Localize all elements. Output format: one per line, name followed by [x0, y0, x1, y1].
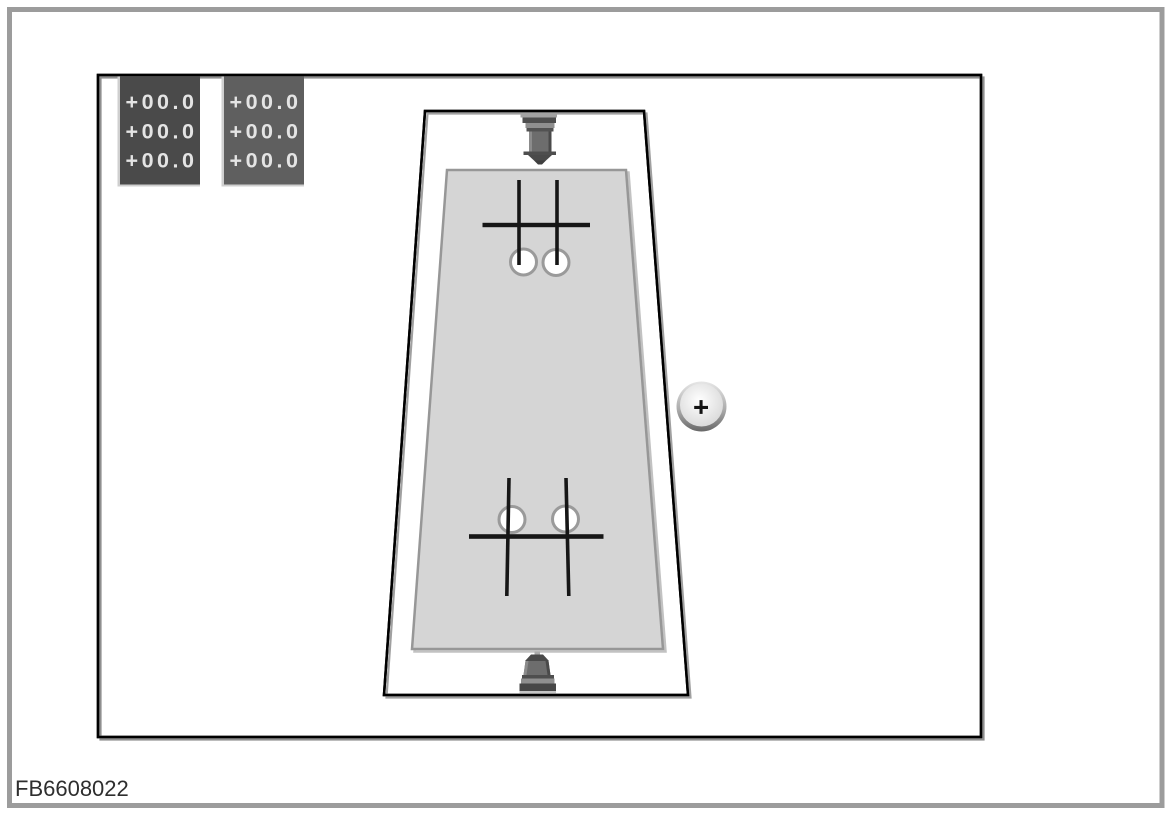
svg-text:+00.0: +00.0 — [230, 90, 302, 114]
svg-text:+00.0: +00.0 — [126, 120, 198, 144]
svg-text:FB6608022: FB6608022 — [15, 776, 129, 801]
svg-text:+00.0: +00.0 — [126, 149, 198, 173]
svg-text:+00.0: +00.0 — [230, 149, 302, 173]
svg-text:+00.0: +00.0 — [230, 120, 302, 144]
svg-text:+00.0: +00.0 — [126, 90, 198, 114]
